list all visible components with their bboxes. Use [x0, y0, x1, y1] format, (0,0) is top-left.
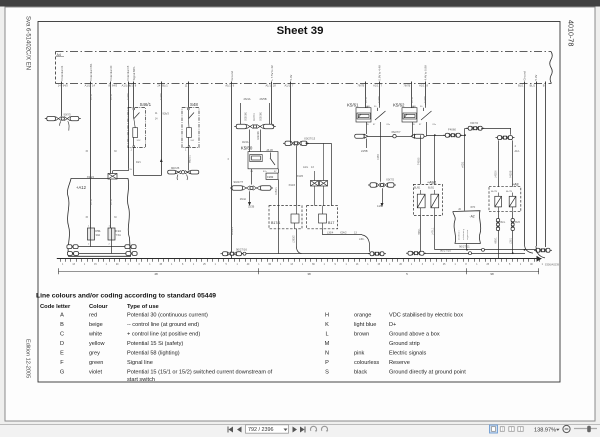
svg-text:92k/3: 92k/3	[163, 112, 170, 116]
svg-text:Potential 15 (15/1 or 15/2) sw: Potential 15 (15/1 or 15/2) switched cur…	[127, 370, 273, 376]
svg-text:0.75Y: 0.75Y	[364, 96, 368, 103]
svg-text:66/27/7: 66/27/7	[392, 130, 401, 134]
svg-text:64/3: 64/3	[112, 84, 118, 88]
svg-text:26/5B: 26/5B	[260, 97, 267, 101]
svg-text:46/4A: 46/4A	[242, 141, 249, 144]
svg-text:670: 670	[471, 205, 476, 209]
svg-text:26/4A: 26/4A	[240, 198, 247, 201]
svg-text:white: white	[88, 332, 102, 338]
svg-text:A1/1: A1/1	[225, 84, 231, 88]
svg-text:5.3V: 5.3V	[534, 75, 538, 81]
svg-text:K5/62: K5/62	[393, 103, 405, 108]
svg-text:90/27/11: 90/27/11	[459, 245, 470, 249]
svg-text:Electric signals: Electric signals	[389, 351, 427, 357]
svg-text:black: black	[354, 370, 367, 376]
svg-text:K: K	[325, 322, 329, 328]
svg-text:Signal line: Signal line	[127, 360, 153, 366]
svg-text:N: N	[325, 351, 329, 357]
svg-text:Type of use: Type of use	[127, 304, 160, 310]
svg-text:MB23/1: MB23/1	[189, 154, 191, 163]
svg-text:7.5A: 7.5A	[116, 233, 122, 237]
svg-text:BL/5: BL/5	[515, 222, 520, 224]
svg-text:Ground directly at ground poin: Ground directly at ground point	[389, 370, 466, 376]
svg-text:F260: F260	[267, 175, 273, 179]
svg-text:A1/1: A1/1	[85, 84, 91, 88]
svg-text:+A8/1: +A8/1	[427, 180, 437, 184]
svg-text:90/27/10: 90/27/10	[440, 249, 451, 253]
svg-text:S: S	[325, 370, 329, 376]
svg-text:Potential 15: Potential 15	[126, 65, 130, 80]
svg-text:F45B: F45B	[377, 154, 380, 160]
svg-text:A1/L: A1/L	[303, 166, 309, 169]
svg-text:6L/B1: 6L/B1	[428, 188, 435, 190]
svg-text:H: H	[325, 312, 329, 318]
svg-text:X0/27/1: X0/27/1	[254, 112, 256, 121]
svg-text:Line colours and/or coding acc: Line colours and/or coding according to …	[36, 293, 216, 300]
svg-text:X34/5: X34/5	[296, 175, 303, 178]
svg-text:K5/61: K5/61	[347, 103, 359, 108]
svg-text:0.75Y: 0.75Y	[377, 96, 381, 103]
svg-text:Potential 31: Potential 31	[60, 65, 64, 80]
svg-text:76/7B: 76/7B	[403, 84, 410, 88]
svg-text:38: 38	[307, 272, 311, 276]
svg-text:E: E	[60, 351, 64, 357]
svg-text:0.75Y: 0.75Y	[159, 93, 163, 100]
svg-text:BL/1: BL/1	[162, 84, 168, 88]
svg-text:A: A	[60, 312, 64, 318]
svg-text:BL/7B: BL/7B	[491, 191, 497, 193]
svg-text:VDC stabilised by electric box: VDC stabilised by electric box	[389, 312, 463, 318]
svg-text:64/3: 64/3	[63, 84, 69, 88]
svg-text:A1/1: A1/1	[127, 84, 133, 88]
svg-text:Code letter: Code letter	[40, 304, 71, 310]
svg-text:98: 98	[490, 272, 494, 276]
svg-text:S46/1: S46/1	[140, 102, 152, 107]
svg-text:BL/B1: BL/B1	[414, 188, 421, 190]
svg-text:Potential 15 Si (safety): Potential 15 Si (safety)	[127, 341, 183, 347]
svg-text:Sva 6-51402C/X EN: Sva 6-51402C/X EN	[25, 16, 31, 70]
svg-text:beige: beige	[89, 322, 103, 328]
svg-text:+ control line (at positive en: + control line (at positive end)	[127, 332, 200, 338]
svg-text:pink: pink	[354, 351, 364, 357]
svg-text:B17: B17	[328, 221, 334, 225]
svg-text:Colour: Colour	[89, 304, 108, 310]
svg-text:L263/1: L263/1	[230, 227, 234, 235]
svg-text:Potential 58 (lighting): Potential 58 (lighting)	[127, 351, 180, 357]
svg-text:26/4A: 26/4A	[244, 97, 251, 101]
svg-text:4010-78: 4010-78	[567, 20, 576, 46]
svg-text:orange: orange	[354, 312, 371, 318]
svg-text:32/2B: 32/2B	[248, 206, 255, 209]
svg-text:L263/2: L263/2	[293, 235, 296, 243]
svg-text:L40EN: L40EN	[495, 170, 498, 178]
svg-text:F14: F14	[116, 229, 122, 233]
svg-text:grey: grey	[89, 351, 100, 357]
svg-text:0.75Y: 0.75Y	[423, 96, 427, 103]
svg-text:L 7.5V to 4V: L 7.5V to 4V	[270, 65, 274, 80]
svg-text:F40BB: F40BB	[509, 170, 512, 178]
svg-text:0.8V to 4.4V: 0.8V to 4.4V	[378, 65, 382, 81]
svg-text:green: green	[89, 360, 103, 366]
svg-text:+A12: +A12	[76, 185, 87, 190]
svg-text:Ground strip: Ground strip	[389, 341, 420, 347]
svg-text:A1/1: A1/1	[419, 84, 425, 88]
svg-text:F51: F51	[96, 229, 102, 233]
svg-text:G0E0M1: G0E0M1	[260, 111, 262, 121]
svg-text:X0/7/2: X0/7/2	[386, 178, 395, 182]
svg-text:L25/1: L25/1	[509, 237, 512, 244]
svg-text:F4060: F4060	[448, 128, 456, 132]
svg-text:30A: 30A	[96, 233, 101, 237]
svg-text:0.75Y: 0.75Y	[410, 96, 414, 103]
svg-text:D+: D+	[389, 322, 396, 328]
svg-text:colourless: colourless	[354, 360, 379, 366]
svg-text:interferenz: interferenz	[458, 230, 461, 240]
svg-text:G: G	[60, 370, 64, 376]
svg-text:5.4V: 5.4V	[289, 75, 293, 81]
svg-text:L47/L1: L47/L1	[432, 227, 435, 235]
svg-text:Potential 30: Potential 30	[109, 65, 113, 80]
svg-text:Potential 30 (continuous curre: Potential 30 (continuous current)	[127, 312, 208, 318]
svg-text:0.75Y: 0.75Y	[126, 93, 130, 100]
svg-text:-A2: -A2	[470, 215, 475, 219]
svg-text:A1/1: A1/1	[373, 84, 379, 88]
svg-text:0.75Y: 0.75Y	[109, 198, 113, 205]
svg-text:BL/1: BL/1	[518, 84, 524, 88]
svg-text:Ground: Ground	[230, 71, 234, 81]
svg-text:90/7/5: 90/7/5	[64, 112, 72, 116]
svg-text:brown: brown	[354, 332, 369, 338]
svg-text:light blue: light blue	[354, 322, 376, 328]
svg-text:A4: A4	[57, 53, 61, 57]
svg-text:Signal MPL: Signal MPL	[132, 66, 136, 81]
svg-text:T40B0: T40B0	[418, 157, 421, 165]
svg-text:76/7B: 76/7B	[357, 84, 364, 88]
svg-text:Edition 12-2005: Edition 12-2005	[25, 339, 31, 378]
svg-text:BL/7B: BL/7B	[506, 191, 513, 193]
svg-text:0.75Y: 0.75Y	[89, 198, 93, 205]
svg-text:X24/2: X24/2	[340, 232, 347, 235]
svg-text:start switch: start switch	[127, 377, 155, 383]
svg-text:X0/27/13: X0/27/13	[304, 137, 316, 141]
svg-text:B17/1: B17/1	[271, 221, 280, 225]
svg-text:Ground above a box: Ground above a box	[389, 332, 440, 338]
svg-text:A1/1: A1/1	[265, 84, 271, 88]
svg-text:G0E0M1: G0E0M1	[258, 130, 260, 140]
svg-text:D: D	[60, 341, 64, 347]
svg-text:-- control line (at ground end: -- control line (at ground end)	[127, 322, 199, 328]
svg-text:L30/-: L30/-	[359, 238, 365, 241]
svg-text:Reserve: Reserve	[389, 360, 410, 366]
svg-text:yellow: yellow	[89, 341, 106, 347]
svg-text:red: red	[89, 312, 97, 318]
svg-text:K5/60: K5/60	[241, 146, 253, 151]
svg-text:S300/A0239: S300/A0239	[545, 263, 560, 267]
svg-text:L: L	[325, 332, 328, 338]
svg-text:BL/L: BL/L	[501, 222, 506, 224]
svg-text:48: 48	[154, 272, 158, 276]
svg-text:MW: MW	[191, 140, 195, 142]
svg-text:Potential 15/1: Potential 15/1	[89, 63, 93, 81]
svg-text:B: B	[543, 84, 545, 88]
svg-text:P: P	[325, 360, 329, 366]
svg-text:Ground: Ground	[523, 71, 527, 81]
svg-text:L30/4: L30/4	[327, 232, 334, 235]
svg-text:F2B0/1: F2B0/1	[275, 187, 278, 195]
svg-text:+62/1: +62/1	[462, 161, 465, 168]
svg-text:792 / 2396: 792 / 2396	[248, 427, 273, 433]
svg-text:A1/1: A1/1	[285, 84, 291, 88]
svg-text:H9B/L: H9B/L	[418, 228, 421, 235]
svg-text:C: C	[60, 332, 64, 338]
svg-text:B: B	[60, 322, 64, 328]
svg-text:violet: violet	[89, 370, 103, 376]
svg-text:suppressor: suppressor	[466, 229, 469, 240]
svg-text:90/27/7: 90/27/7	[234, 180, 244, 184]
svg-text:X34/3: X34/3	[288, 184, 295, 187]
svg-text:X0/7/2: X0/7/2	[470, 121, 479, 125]
svg-text:MW: MW	[137, 140, 141, 142]
svg-text:0.75Y: 0.75Y	[89, 93, 93, 100]
svg-text:A1/L: A1/L	[515, 150, 521, 153]
svg-text:Sheet 39: Sheet 39	[277, 25, 324, 37]
svg-text:entstoerung: entstoerung	[462, 228, 465, 240]
svg-text:94/1: 94/1	[136, 161, 141, 164]
svg-text:X34/2: X34/2	[87, 175, 95, 179]
svg-text:24/5B: 24/5B	[361, 150, 368, 153]
svg-text:138.97%: 138.97%	[534, 427, 556, 433]
svg-text:BL/1: BL/1	[530, 84, 536, 88]
svg-text:+A8: +A8	[512, 183, 519, 187]
svg-text:F: F	[60, 360, 64, 366]
svg-text:G0E0M1: G0E0M1	[245, 111, 247, 121]
svg-text:0.75Y: 0.75Y	[109, 93, 113, 100]
svg-text:H9B/1: H9B/1	[495, 237, 498, 244]
svg-text:90/1/5: 90/1/5	[171, 166, 180, 170]
svg-text:4.4V to 0.8V: 4.4V to 0.8V	[424, 65, 428, 81]
svg-text:S48: S48	[190, 102, 198, 107]
svg-text:M: M	[325, 341, 330, 347]
svg-text:90/27/16: 90/27/16	[236, 248, 247, 252]
